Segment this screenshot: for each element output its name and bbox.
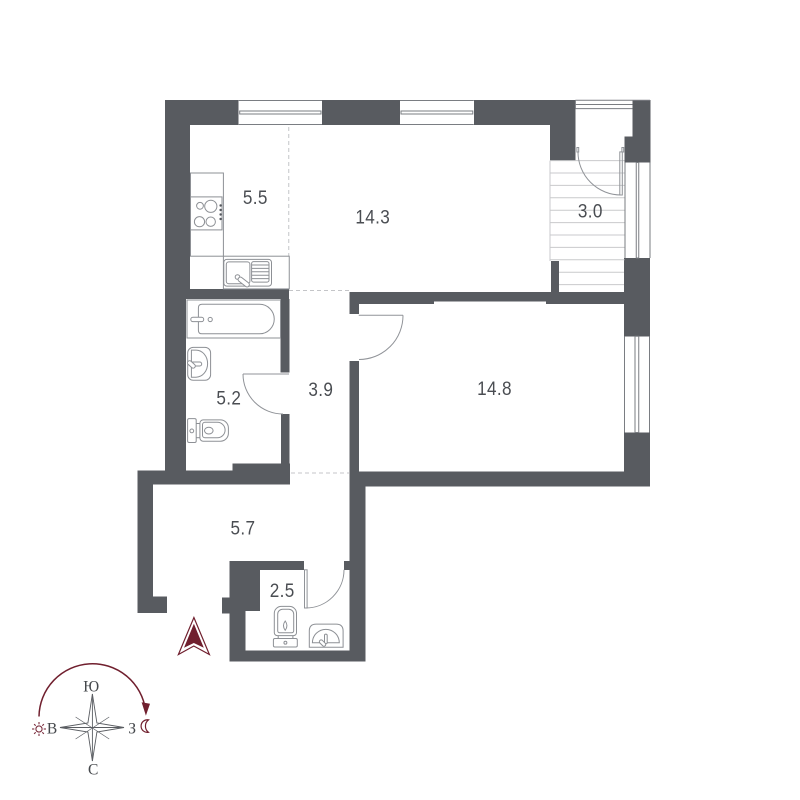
svg-text:2.5: 2.5 xyxy=(270,579,295,601)
svg-text:5.2: 5.2 xyxy=(216,386,241,408)
svg-text:3.9: 3.9 xyxy=(308,378,333,400)
svg-text:5.7: 5.7 xyxy=(230,516,255,538)
svg-text:5.5: 5.5 xyxy=(243,186,268,208)
svg-text:В: В xyxy=(47,721,57,738)
svg-text:14.8: 14.8 xyxy=(477,377,512,399)
svg-text:14.3: 14.3 xyxy=(355,206,390,228)
svg-text:С: С xyxy=(88,762,98,779)
svg-text:З: З xyxy=(128,721,136,738)
svg-text:3.0: 3.0 xyxy=(578,199,603,221)
svg-text:Ю: Ю xyxy=(83,679,99,696)
